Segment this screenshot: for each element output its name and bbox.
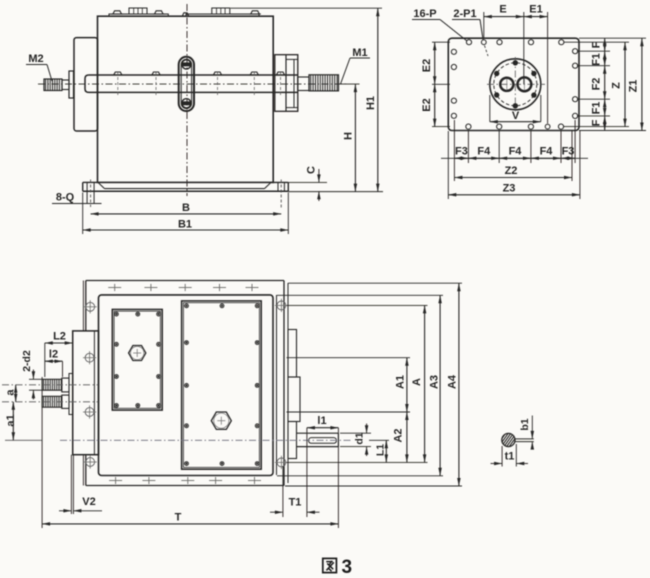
- svg-text:A3: A3: [429, 375, 441, 389]
- svg-text:l1: l1: [317, 415, 326, 427]
- svg-text:b1: b1: [519, 418, 531, 430]
- svg-text:E2: E2: [421, 98, 433, 111]
- svg-text:V: V: [512, 110, 520, 122]
- svg-text:B: B: [182, 202, 190, 214]
- svg-text:16-P: 16-P: [413, 8, 436, 20]
- svg-text:2-d2: 2-d2: [21, 350, 33, 372]
- svg-text:Z2: Z2: [505, 165, 518, 177]
- svg-text:F1: F1: [591, 102, 603, 115]
- svg-text:Z: Z: [611, 82, 623, 89]
- svg-text:a1: a1: [5, 414, 17, 426]
- svg-text:E1: E1: [529, 4, 542, 16]
- svg-text:V2: V2: [82, 496, 95, 508]
- svg-text:M1: M1: [352, 47, 367, 59]
- svg-text:F4: F4: [477, 146, 491, 158]
- svg-text:T: T: [175, 512, 182, 524]
- svg-text:Z3: Z3: [503, 183, 516, 195]
- svg-text:A: A: [411, 378, 423, 386]
- svg-text:L2: L2: [53, 331, 66, 343]
- svg-text:F4: F4: [540, 146, 554, 158]
- svg-text:C: C: [306, 166, 318, 174]
- svg-text:A2: A2: [393, 428, 405, 442]
- svg-text:a: a: [5, 389, 17, 396]
- svg-text:t1: t1: [505, 451, 515, 463]
- svg-text:T1: T1: [289, 497, 302, 509]
- svg-text:d1: d1: [354, 432, 366, 444]
- svg-text:Z1: Z1: [628, 80, 640, 93]
- svg-text:F2: F2: [591, 78, 603, 91]
- svg-text:F: F: [591, 119, 603, 126]
- svg-text:E2: E2: [421, 59, 433, 72]
- svg-text:F3: F3: [562, 146, 575, 158]
- svg-text:H1: H1: [365, 96, 377, 110]
- svg-text:2-P1: 2-P1: [453, 8, 476, 20]
- svg-text:B1: B1: [178, 218, 192, 230]
- svg-text:E: E: [499, 4, 506, 16]
- svg-text:F3: F3: [455, 146, 468, 158]
- svg-text:F4: F4: [509, 146, 523, 158]
- svg-text:l2: l2: [49, 349, 58, 361]
- svg-text:H: H: [343, 132, 355, 140]
- svg-text:8-Q: 8-Q: [56, 192, 75, 204]
- svg-text:L1: L1: [375, 444, 387, 456]
- svg-text:3: 3: [342, 557, 353, 578]
- svg-text:M2: M2: [28, 53, 43, 65]
- svg-text:A1: A1: [395, 375, 407, 389]
- svg-text:F1: F1: [591, 53, 603, 66]
- svg-text:A4: A4: [447, 374, 459, 389]
